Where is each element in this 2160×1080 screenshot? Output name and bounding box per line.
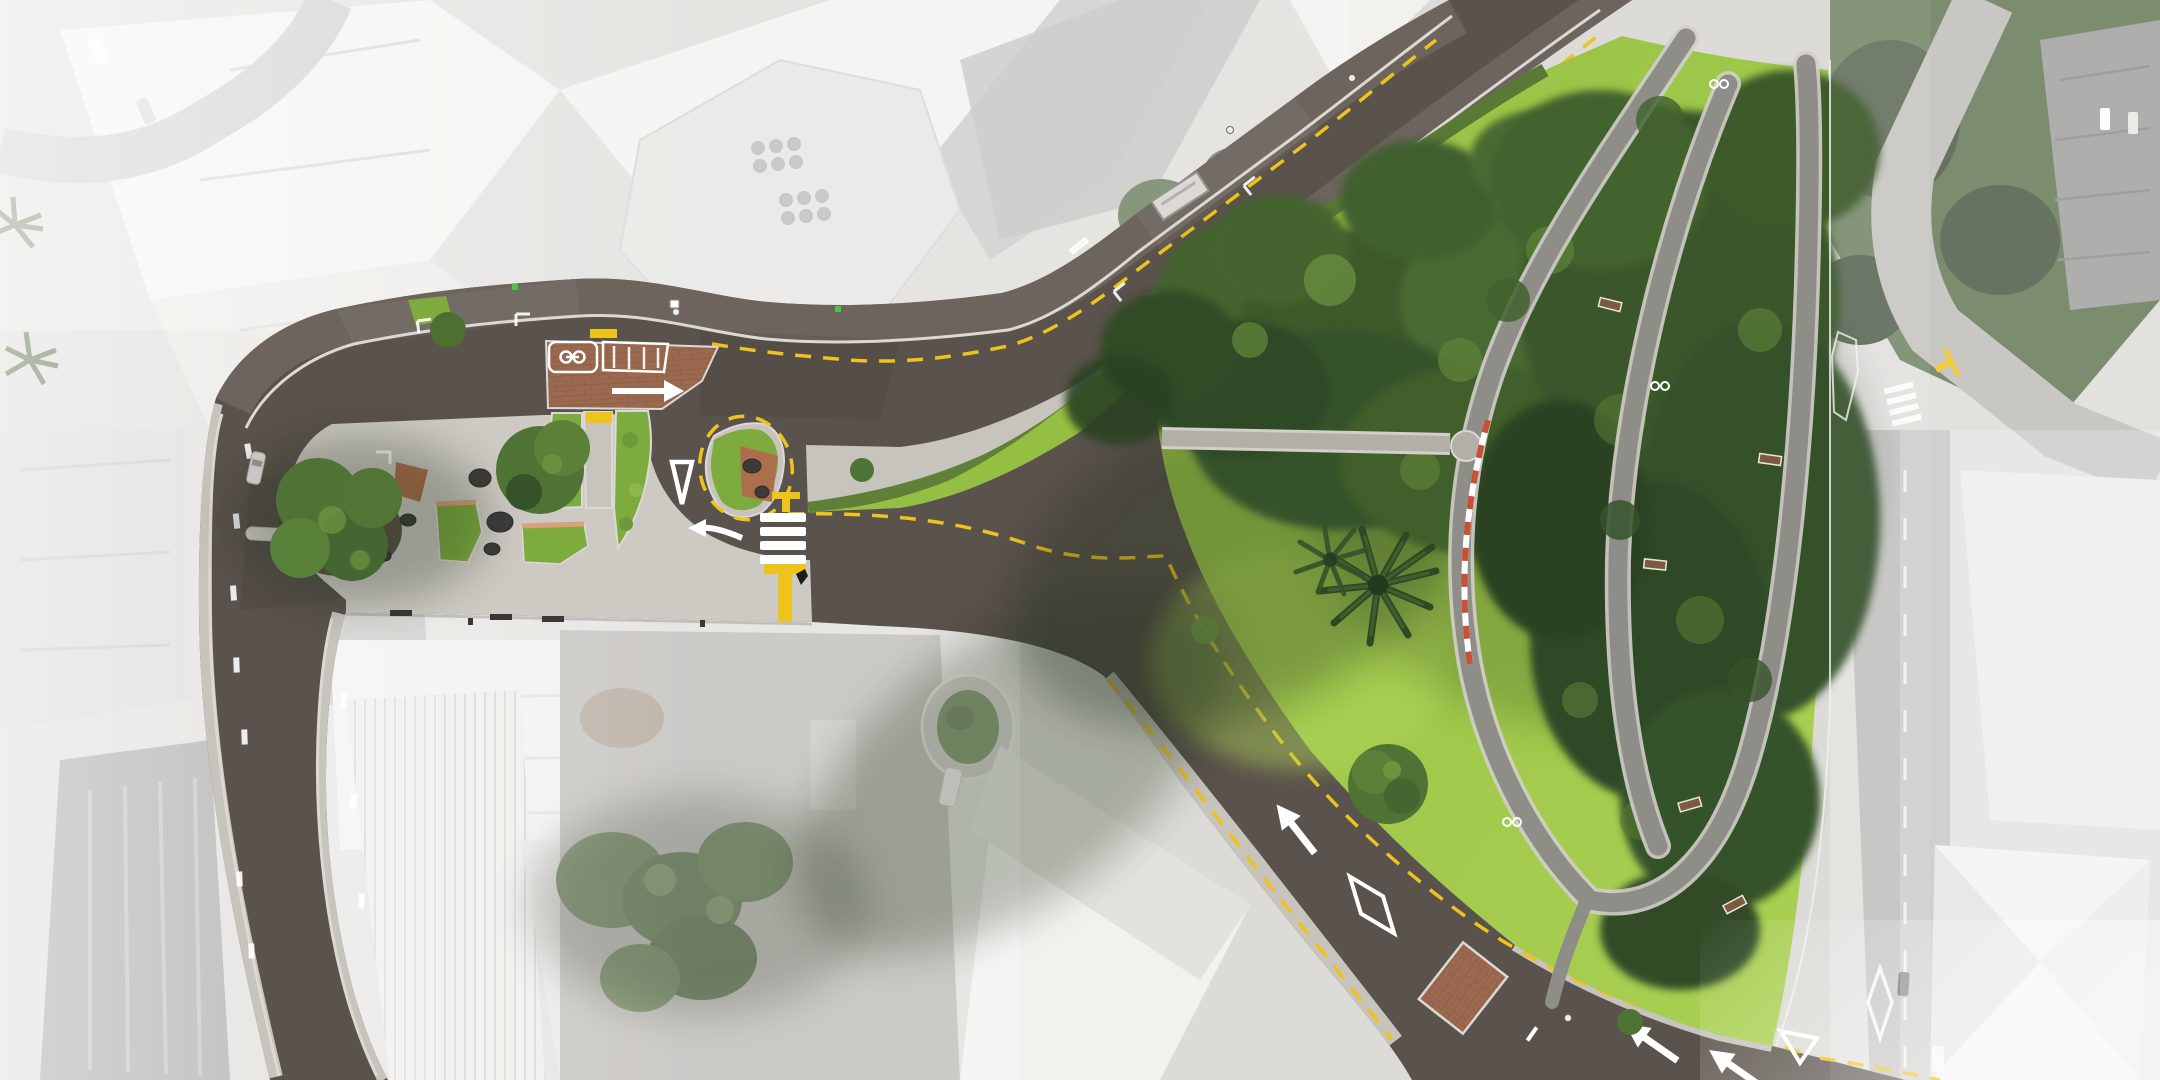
signal-green-dot	[835, 306, 841, 312]
bus-stop-yellow-box	[590, 329, 617, 338]
lawn-tree	[1348, 744, 1428, 824]
signal-green-dot	[512, 284, 518, 290]
boulder	[487, 512, 513, 532]
lawn-bush	[1191, 616, 1219, 644]
aerial-masterplan-render	[0, 0, 2160, 1080]
park-bench	[1644, 559, 1667, 570]
yellow-bar-marking	[586, 412, 612, 423]
lawn-bush	[850, 458, 874, 482]
utility-box	[670, 300, 679, 308]
boulder	[484, 543, 500, 555]
lawn-bush	[1617, 1009, 1643, 1035]
